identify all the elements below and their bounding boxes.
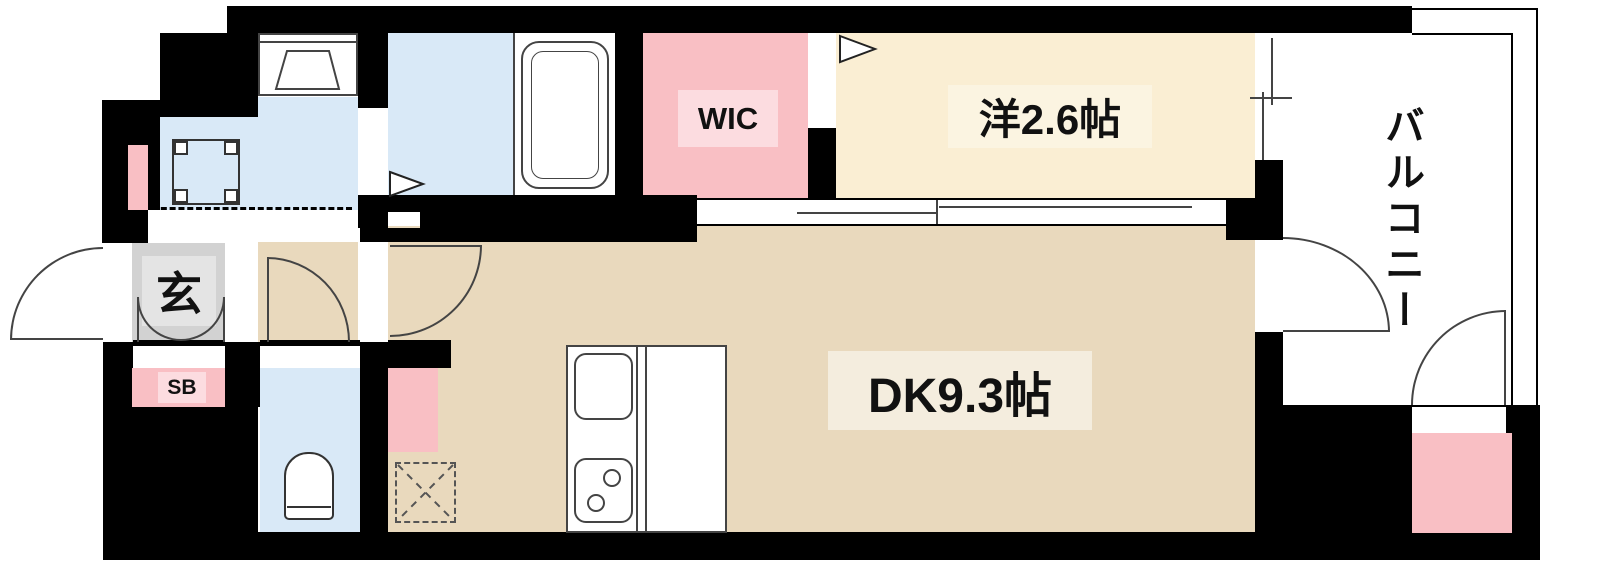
washroom-dashed-boundary	[152, 207, 352, 210]
washing-machine-pan-corner	[224, 141, 238, 155]
toilet-seat-line	[287, 506, 331, 508]
entrance-cabinet-side	[137, 297, 139, 342]
wall-segment	[358, 195, 388, 228]
entrance-label: 玄	[142, 256, 216, 326]
wall-segment	[615, 33, 643, 198]
washing-machine-pan-corner	[224, 189, 238, 203]
room-washroom-notch	[258, 97, 358, 117]
wall-segment	[808, 128, 836, 198]
dk-label: DK9.3帖	[828, 351, 1092, 430]
stove-burner	[603, 469, 621, 487]
wall-segment	[360, 228, 420, 242]
toilet-icon	[284, 452, 334, 520]
washbasin-icon	[258, 33, 358, 96]
sliding-door-panel-line	[939, 206, 1192, 208]
pink-box-kitchen-side	[388, 368, 438, 452]
wic-label: WIC	[678, 90, 778, 147]
wall-segment	[360, 342, 388, 535]
washing-machine-pan-corner	[174, 189, 188, 203]
sliding-door-track	[697, 198, 1226, 226]
kitchen-divider-line	[636, 347, 638, 531]
wall-segment	[103, 342, 133, 407]
shoe-box-label: SB	[158, 372, 206, 403]
western-room-label: 洋2.6帖	[948, 85, 1152, 148]
wall-segment	[225, 342, 260, 407]
stove-burner	[587, 494, 605, 512]
balcony-label: バルコニー	[1377, 70, 1425, 370]
floor-hatch-x-icon	[395, 462, 456, 523]
wall-segment	[420, 195, 697, 242]
entrance-cabinet-side	[223, 297, 225, 342]
service-square	[1412, 433, 1512, 533]
kitchen-sink	[574, 353, 633, 420]
wall-segment	[160, 33, 258, 117]
window-line	[1262, 92, 1264, 160]
wall-segment	[1226, 198, 1255, 240]
sliding-door-panel-line	[797, 212, 937, 214]
bathtub-inner	[531, 51, 599, 179]
western-room-entry-arrow-icon	[838, 34, 878, 64]
sliding-door-meeting-stile	[936, 200, 938, 224]
wall-segment	[1255, 160, 1283, 240]
gas-stove	[574, 458, 633, 523]
wall-segment	[1255, 332, 1283, 405]
floor-plan: WIC 洋2.6帖 DK9.3帖 玄 SB バルコニー	[0, 0, 1608, 568]
wall-segment	[358, 33, 388, 108]
wall-segment	[227, 6, 1412, 33]
pipe-space-strip-front	[128, 145, 148, 210]
window-line	[1271, 38, 1273, 105]
wall-segment	[103, 532, 1255, 560]
room-dk	[388, 226, 1255, 535]
washing-machine-pan-corner	[174, 141, 188, 155]
wall-segment	[102, 210, 148, 243]
balcony-bottom-opening	[1412, 407, 1506, 433]
wall-segment	[388, 340, 451, 368]
front-door-swing	[10, 247, 103, 340]
kitchen-divider-line	[645, 347, 647, 531]
bathroom-entry-arrow-icon	[388, 170, 426, 198]
window-tick	[1250, 97, 1292, 99]
